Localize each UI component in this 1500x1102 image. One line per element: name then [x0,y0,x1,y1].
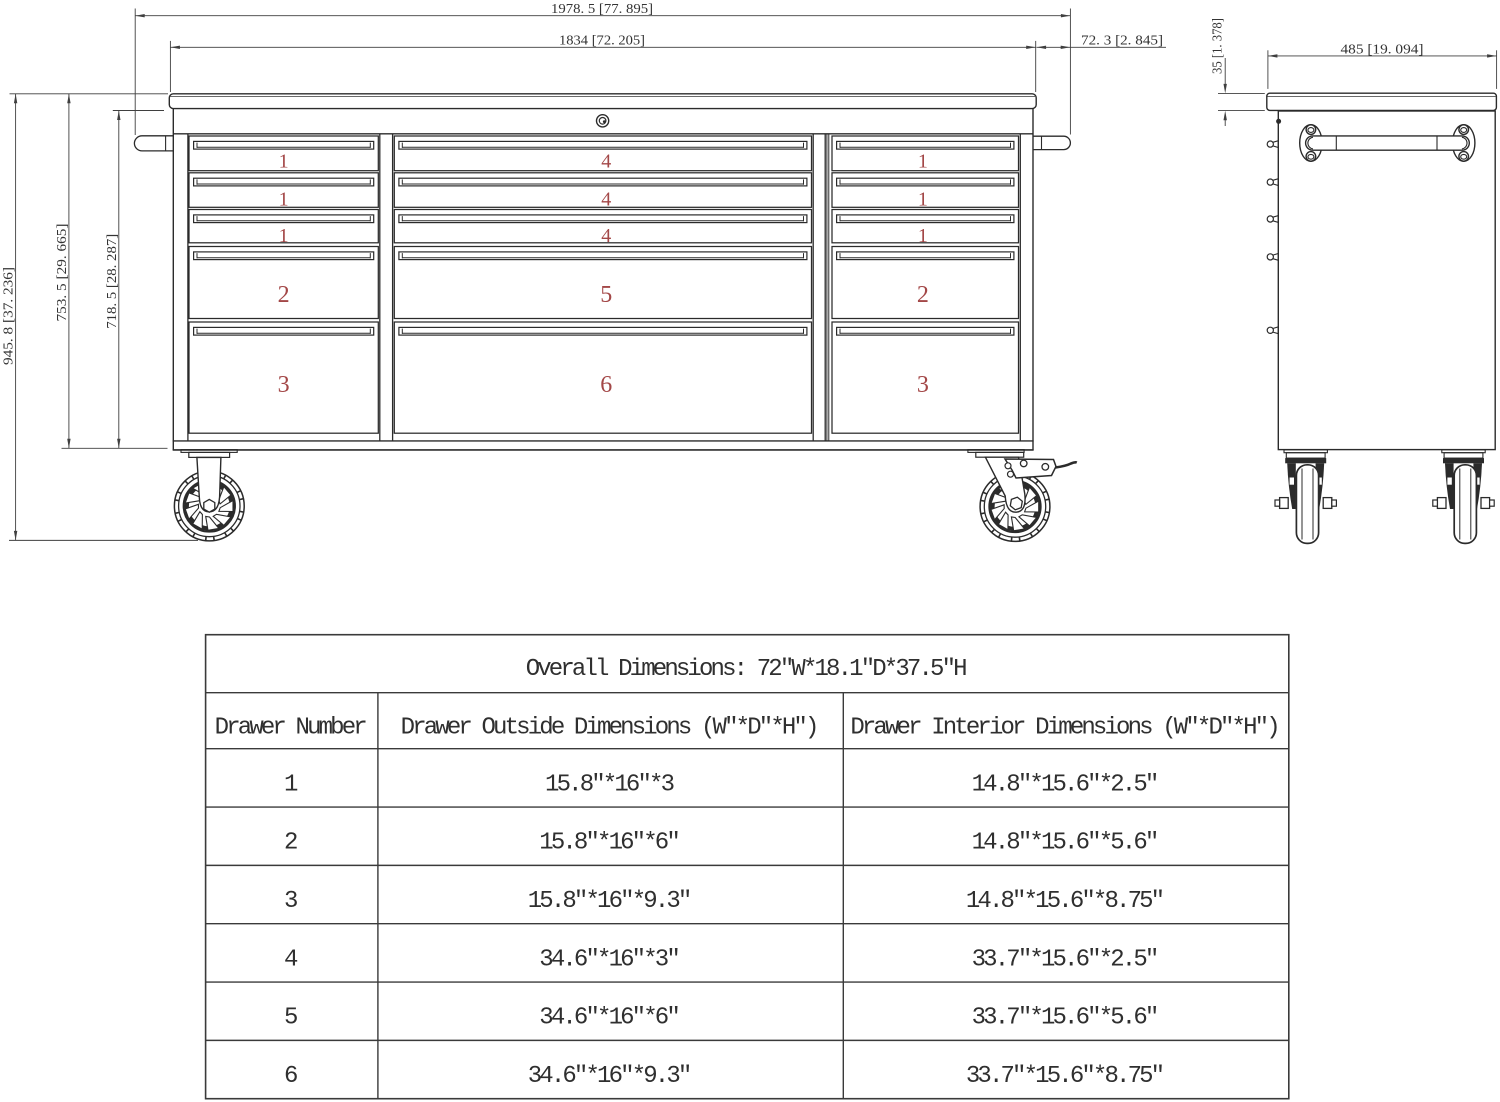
svg-text:485 [19. 094]: 485 [19. 094] [1341,42,1424,57]
svg-text:4: 4 [601,188,611,210]
svg-text:3: 3 [917,372,929,398]
svg-text:2: 2 [284,830,297,857]
svg-text:Drawer Interior Dimensions (W″: Drawer Interior Dimensions (W″*D″*H″) [850,715,1277,742]
svg-text:3: 3 [284,888,297,915]
svg-text:33.7″*15.6″*8.75″: 33.7″*15.6″*8.75″ [966,1063,1163,1090]
svg-text:34.6″*16″*6″: 34.6″*16″*6″ [539,1005,678,1032]
svg-text:1834 [72. 205]: 1834 [72. 205] [559,34,645,49]
svg-text:14.8″*15.6″*5.6″: 14.8″*15.6″*5.6″ [972,830,1157,857]
svg-text:5: 5 [600,282,612,308]
svg-text:34.6″*16″*3″: 34.6″*16″*3″ [539,946,678,973]
svg-text:72. 3 [2. 845]: 72. 3 [2. 845] [1081,34,1163,49]
svg-text:34.6″*16″*9.3″: 34.6″*16″*9.3″ [528,1063,690,1090]
svg-text:14.8″*15.6″*2.5″: 14.8″*15.6″*2.5″ [972,771,1157,798]
svg-text:Overall Dimensions: 72″W*18.1″: Overall Dimensions: 72″W*18.1″D*37.5″H [526,656,966,683]
svg-text:3: 3 [278,372,290,398]
svg-text:1: 1 [279,151,289,173]
svg-text:35 [1. 378]: 35 [1. 378] [1210,18,1225,74]
svg-text:15.8″*16″*9.3″: 15.8″*16″*9.3″ [528,888,690,915]
svg-text:1: 1 [918,151,928,173]
svg-text:1978. 5 [77. 895]: 1978. 5 [77. 895] [551,2,653,17]
svg-text:5: 5 [284,1005,297,1032]
svg-text:945. 8 [37. 236]: 945. 8 [37. 236] [2,267,17,365]
svg-text:Drawer Number: Drawer Number [215,715,367,742]
svg-text:1: 1 [918,188,928,210]
svg-text:753. 5 [29. 665]: 753. 5 [29. 665] [55,224,70,322]
svg-text:15.8″*16″*6″: 15.8″*16″*6″ [539,830,678,857]
svg-text:2: 2 [278,282,290,308]
svg-text:33.7″*15.6″*5.6″: 33.7″*15.6″*5.6″ [972,1005,1157,1032]
svg-text:6: 6 [284,1063,297,1090]
svg-text:Drawer Outside Dimensions (W″*: Drawer Outside Dimensions (W″*D″*H″) [401,715,817,742]
svg-text:1: 1 [279,188,289,210]
svg-text:718. 5 [28. 287]: 718. 5 [28. 287] [105,234,120,329]
svg-text:15.8″*16″*3: 15.8″*16″*3 [545,771,674,798]
svg-text:2: 2 [917,282,929,308]
svg-text:1: 1 [918,225,928,247]
svg-text:4: 4 [601,151,611,173]
svg-text:4: 4 [601,225,611,247]
svg-text:14.8″*15.6″*8.75″: 14.8″*15.6″*8.75″ [966,888,1163,915]
svg-text:6: 6 [600,372,612,398]
svg-text:33.7″*15.6″*2.5″: 33.7″*15.6″*2.5″ [972,946,1157,973]
svg-text:1: 1 [279,225,289,247]
